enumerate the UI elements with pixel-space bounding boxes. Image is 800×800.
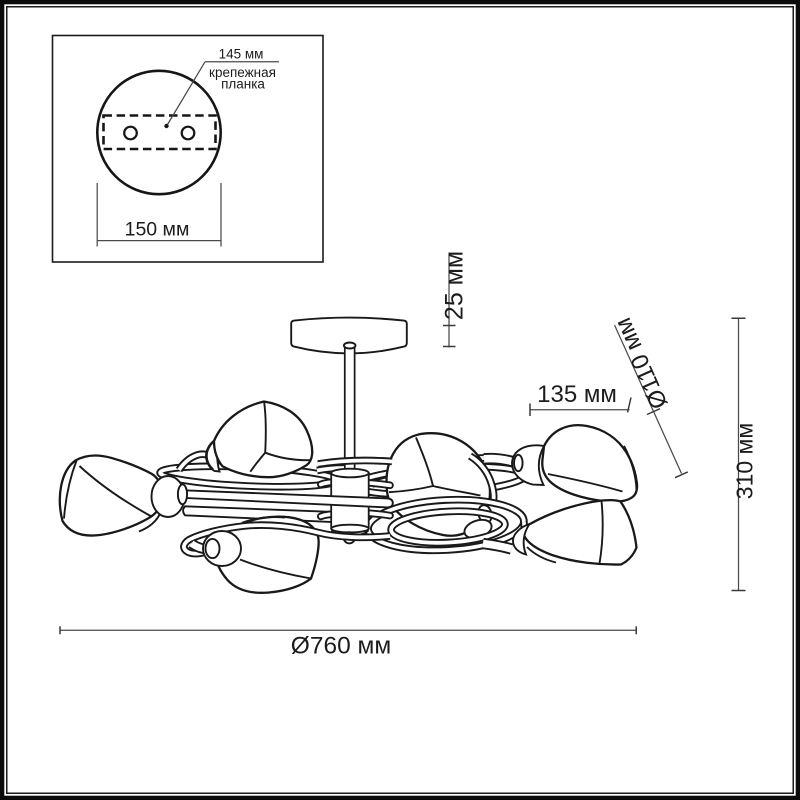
svg-text:25 мм: 25 мм — [441, 251, 469, 320]
svg-text:310 мм: 310 мм — [732, 423, 758, 499]
svg-text:135 мм: 135 мм — [537, 381, 617, 408]
svg-text:Ø760 мм: Ø760 мм — [291, 633, 391, 660]
svg-text:планка: планка — [221, 77, 265, 92]
svg-text:145 мм: 145 мм — [219, 47, 264, 62]
svg-text:150 мм: 150 мм — [125, 219, 190, 241]
